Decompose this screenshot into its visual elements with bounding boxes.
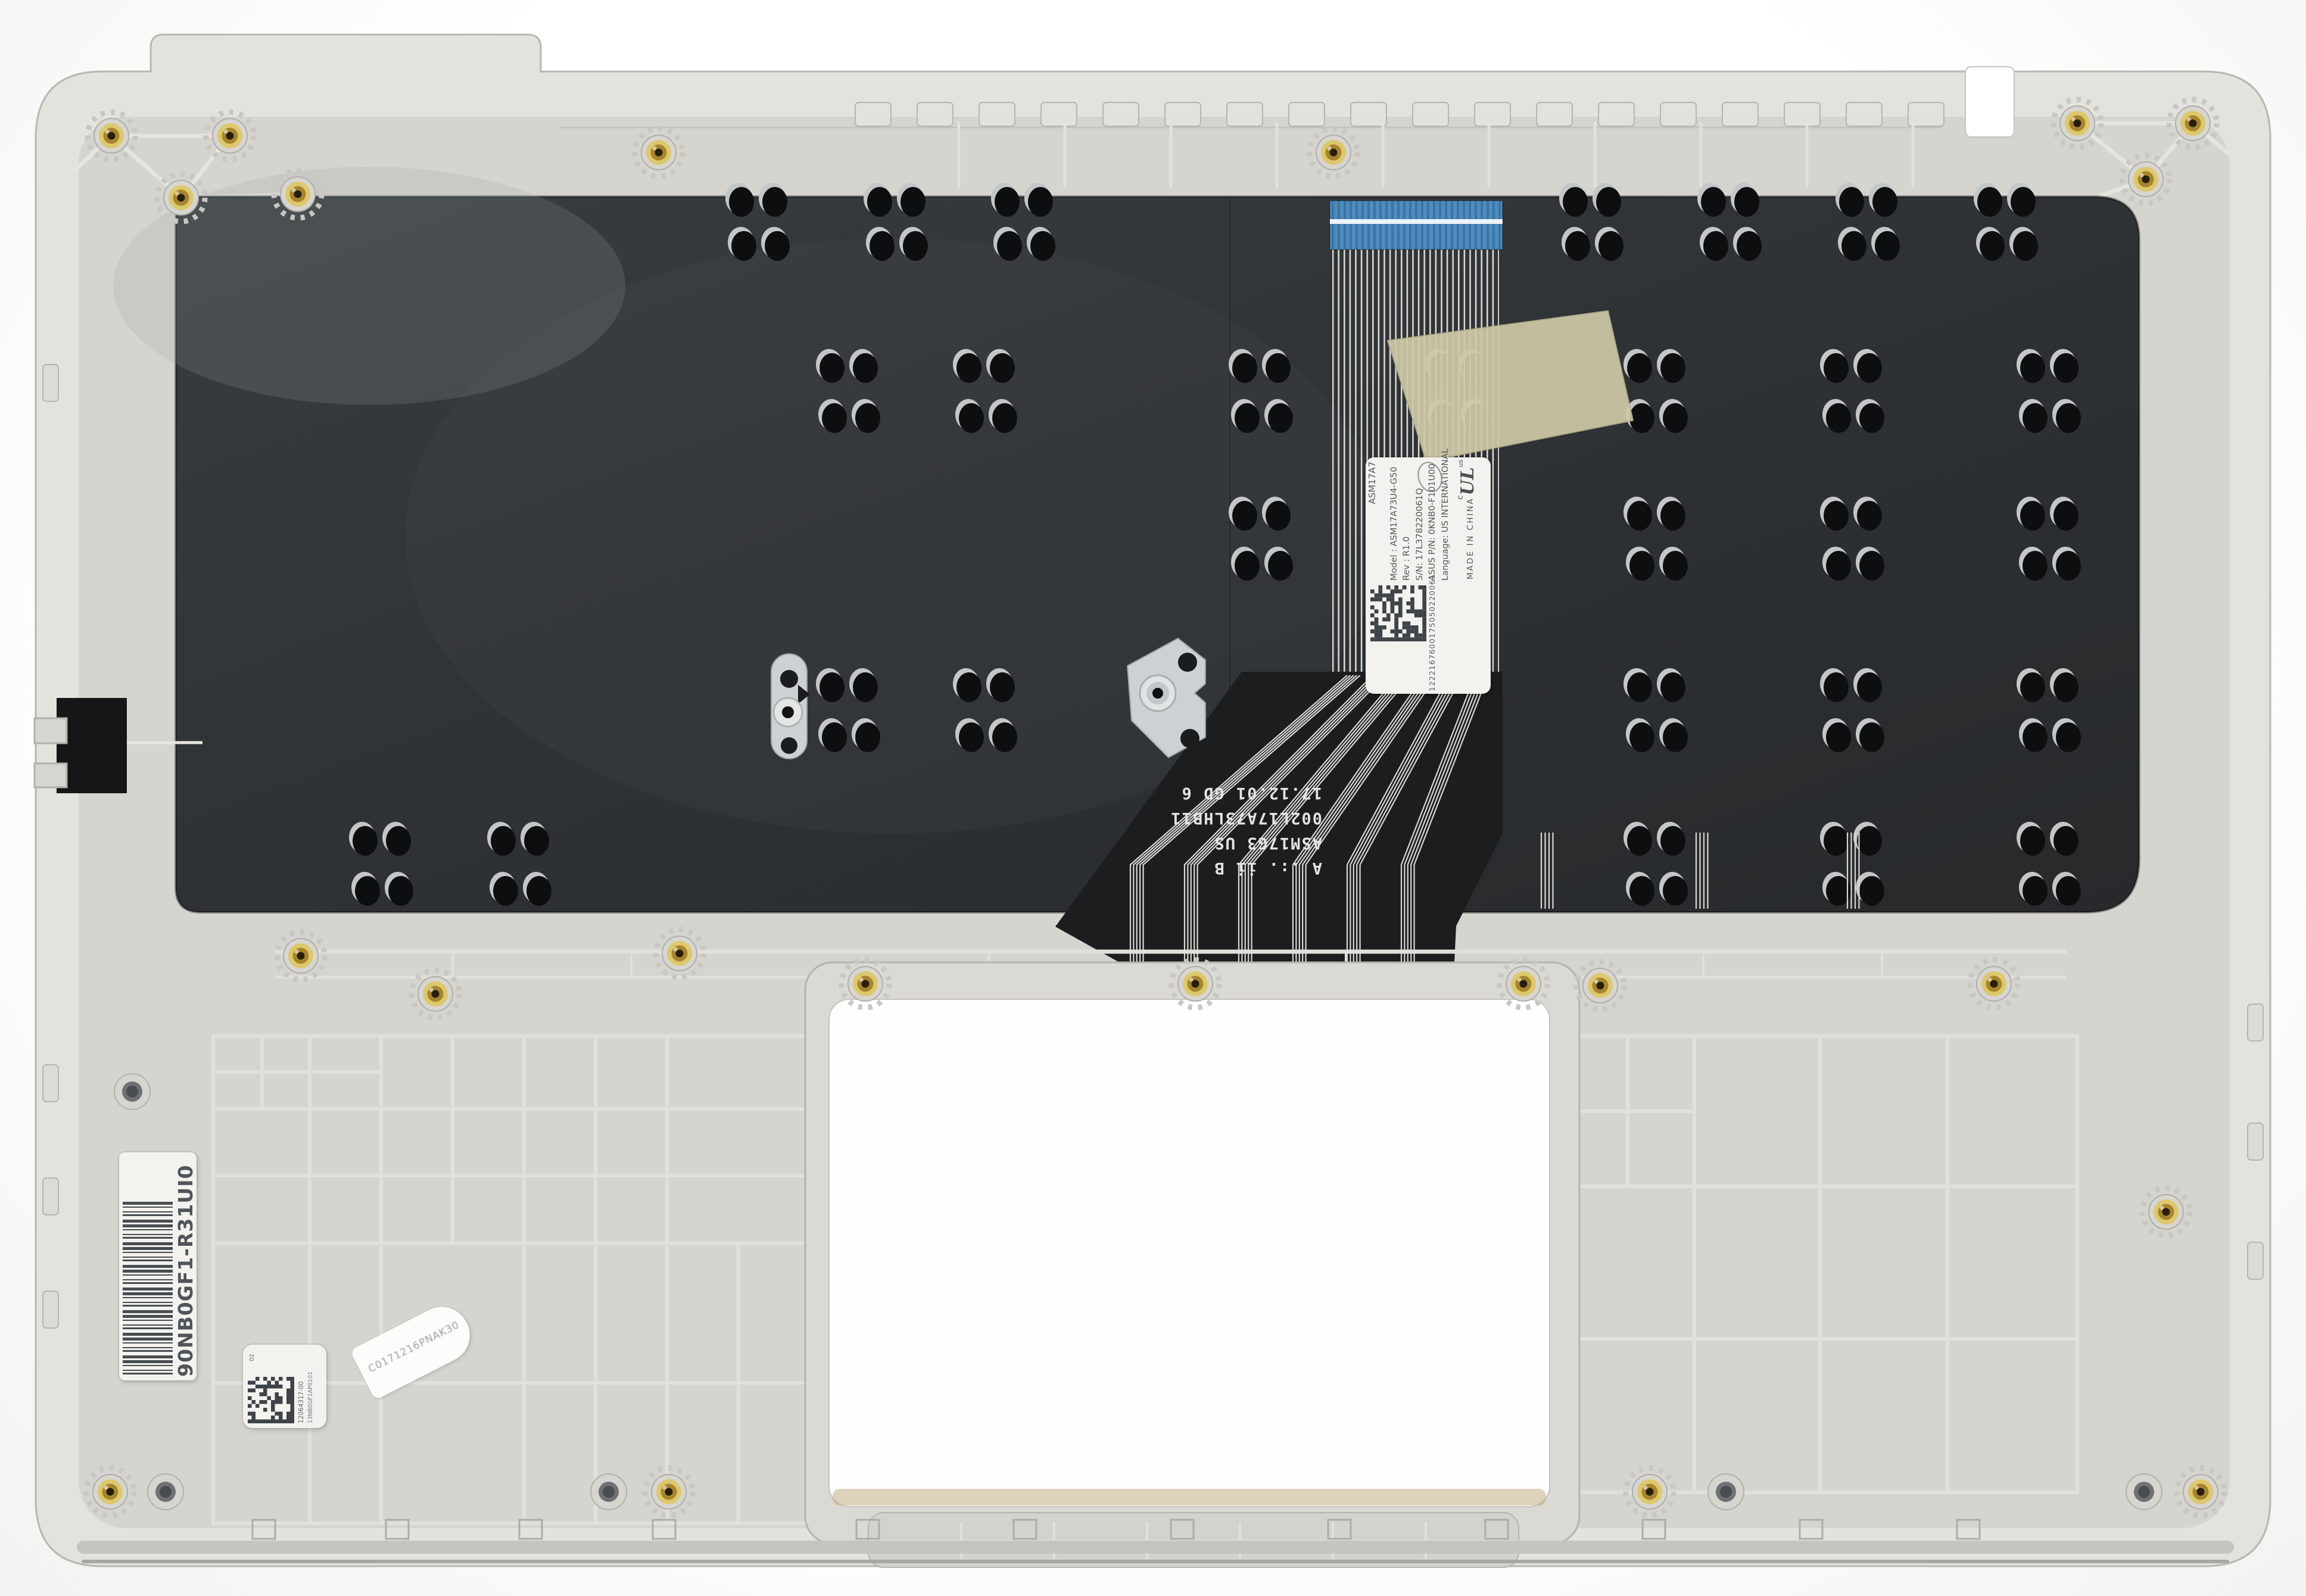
barcode-text: 90NB0GF1-R31UI0 <box>174 1153 197 1377</box>
print-line: 002L17A73LHB11 <box>1089 805 1322 830</box>
product-photo: ASM17A7 Model : ASM17A73U4-G50 Rev : R1.… <box>0 0 2306 1596</box>
qr-line1: 12064317-00 <box>298 1346 305 1423</box>
ul-us: us <box>1457 460 1464 467</box>
shell-clip-tab <box>1413 102 1448 126</box>
barcode-label: 90NB0GF1-R31UI0 <box>119 1152 197 1380</box>
edge-tab <box>2248 1004 2263 1041</box>
shell-clip-tab <box>1537 102 1572 126</box>
shell-clip-tab <box>1227 102 1263 126</box>
edge-tab <box>43 1291 58 1328</box>
qr-side-text: 02 <box>249 1347 255 1361</box>
shell-clip-tab <box>1846 102 1882 126</box>
edge-tab <box>2248 1123 2263 1160</box>
shell-clip-tab <box>1722 102 1758 126</box>
shell-clip-tab <box>1660 102 1696 126</box>
datamatrix-pattern <box>248 1377 294 1423</box>
shell-clip-tab <box>1475 102 1510 126</box>
ul-c: c <box>1456 495 1465 500</box>
screw-hole <box>2126 1474 2162 1510</box>
qr-datamatrix <box>248 1377 294 1423</box>
qr-label: 02 12064317-00 13NB0GF1AP0101 <box>243 1345 326 1428</box>
print-line: A .:. ii B <box>1089 855 1322 880</box>
touchpad-opening <box>829 999 1550 1507</box>
shell-clip-tab <box>1041 102 1077 126</box>
model-line: Model : ASM17A73U4-G50 <box>1388 459 1401 581</box>
hinge-notch <box>1965 67 2014 137</box>
ul-logo: UL <box>1457 467 1478 495</box>
edge-tab <box>43 364 58 401</box>
qr-line2: 13NB0GF1AP0101 <box>307 1346 314 1423</box>
shell-clip-tab <box>1784 102 1820 126</box>
datamatrix-code <box>1370 585 1426 641</box>
model-suffix: ASM17A7 <box>1367 462 1378 542</box>
shell-clip-tab <box>1289 102 1325 126</box>
datamatrix-pattern <box>1370 585 1426 641</box>
metal-bracket-left <box>771 654 810 759</box>
screw-hole <box>1708 1474 1744 1510</box>
shell-clip-tab <box>1351 102 1386 126</box>
edge-tab <box>2248 1242 2263 1279</box>
print-line: 17.12.01 GD 6 <box>1089 781 1322 806</box>
edge-tab <box>43 1065 58 1102</box>
touchpad-edge-tint <box>833 1489 1546 1505</box>
edge-tab <box>43 1178 58 1215</box>
ul-certification-mark: cULus <box>1456 458 1487 500</box>
barcode <box>123 1202 173 1374</box>
screw-hole <box>591 1474 627 1510</box>
shell-clip-tab <box>855 102 891 126</box>
ffc-connector-line <box>1330 219 1503 224</box>
shell-clip-tab <box>1598 102 1634 126</box>
ffc-connector <box>1330 201 1503 250</box>
shell-clip-tab <box>917 102 953 126</box>
model-info-label: ASM17A7 Model : ASM17A73U4-G50 Rev : R1.… <box>1366 457 1491 694</box>
screw-hole <box>148 1474 183 1510</box>
screw-hole <box>114 1074 150 1109</box>
shell-clip-tab <box>979 102 1015 126</box>
shell-clip-tab <box>1103 102 1139 126</box>
print-line: ASM17G3 US <box>1089 830 1322 855</box>
membrane-print: A .:. ii B ASM17G3 US 002L17A73LHB11 17.… <box>1089 749 1322 880</box>
serial-number: 1222167600175050220061 <box>1428 578 1436 691</box>
rev-line: Rev : R1.0 <box>1401 459 1413 581</box>
